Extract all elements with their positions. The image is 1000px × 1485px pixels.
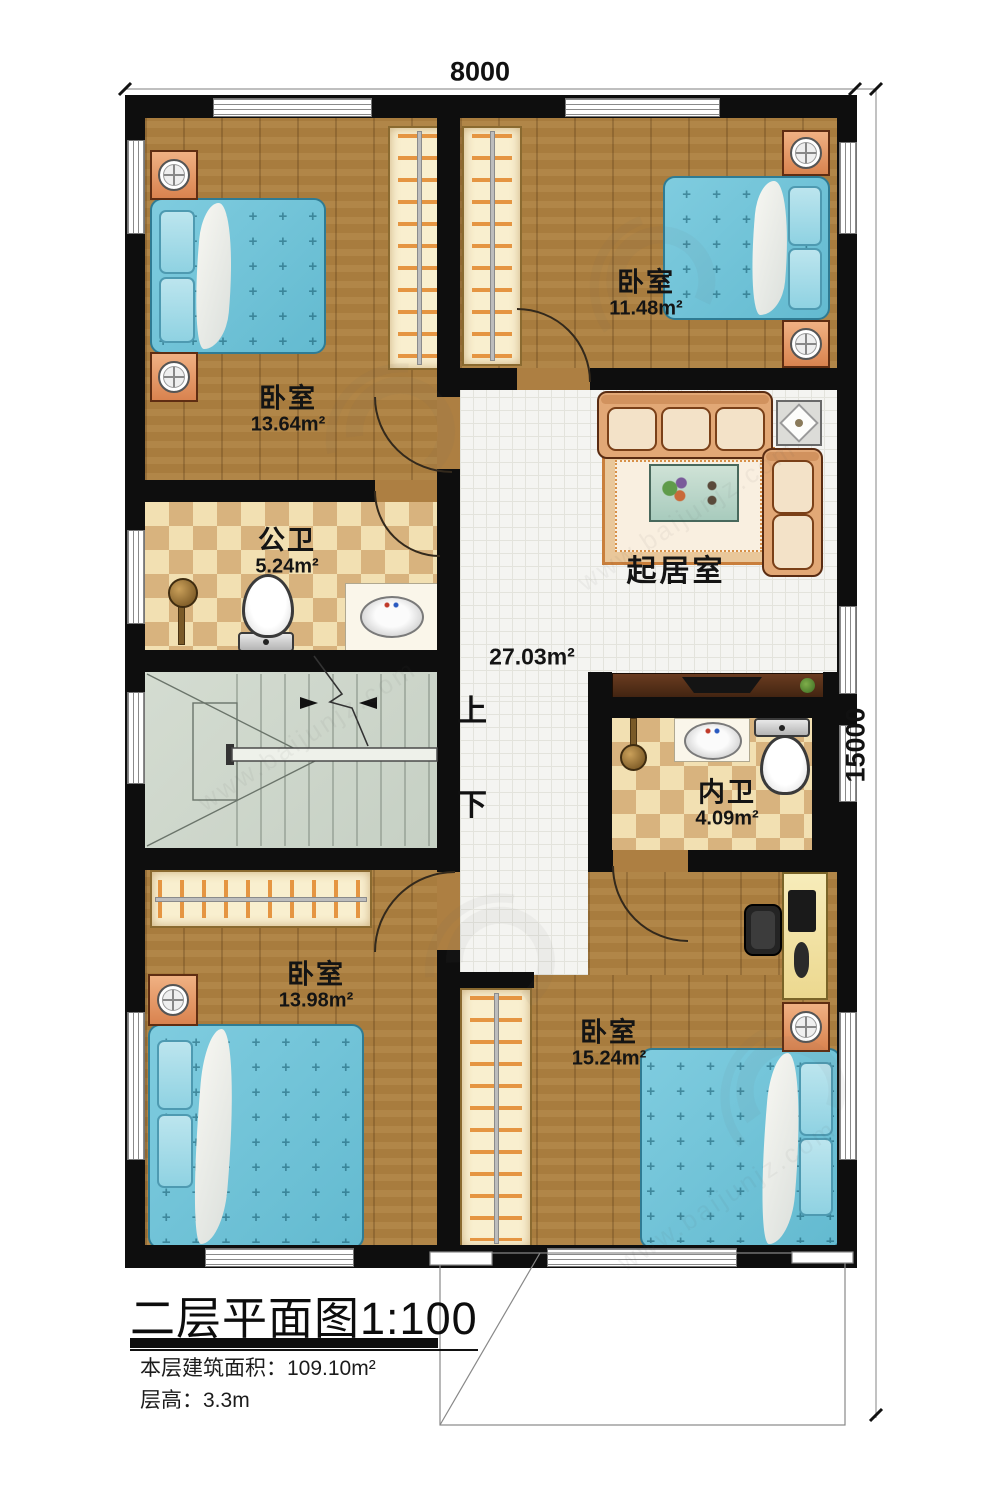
title-underline-bar: [130, 1338, 438, 1348]
window: [839, 1012, 857, 1160]
room-name: 公卫: [255, 526, 318, 556]
wardrobe: [460, 988, 532, 1249]
sofa-cushion: [772, 460, 814, 514]
sink: [360, 596, 424, 638]
floor-plan-canvas: 卧室 13.64m² 卧室 11.48m² 公卫 5.24m² 起居室 27.0…: [0, 0, 1000, 1485]
room-label-public-bath: 公卫 5.24m²: [255, 526, 318, 579]
window: [547, 1248, 737, 1267]
nightstand: [150, 150, 198, 200]
sofa-cushion: [715, 407, 765, 451]
bed-sheet: [190, 203, 239, 349]
floor-height-line: 层高：3.3m: [140, 1384, 250, 1414]
wall-segment: [590, 368, 837, 390]
floor-area-line: 本层建筑面积：109.10m²: [140, 1352, 376, 1382]
wall-segment: [437, 950, 460, 1245]
sink: [684, 722, 742, 760]
wall-segment: [450, 972, 534, 988]
wall-segment: [125, 650, 460, 672]
pillow: [799, 1138, 833, 1216]
window: [127, 692, 145, 784]
door-opening: [375, 480, 437, 502]
wall-segment: [688, 850, 837, 872]
room-area: 13.64m²: [251, 414, 326, 436]
window: [213, 98, 372, 117]
window: [565, 98, 720, 117]
window: [839, 142, 857, 234]
plant: [800, 678, 815, 693]
room-name: 卧室: [279, 960, 354, 990]
room-area: 5.24m²: [255, 556, 318, 578]
pillow: [157, 1114, 193, 1188]
bed-sheet: [187, 1029, 242, 1244]
wall-segment: [588, 697, 839, 718]
wardrobe: [150, 870, 372, 928]
corner-table: [776, 400, 822, 446]
wardrobe: [462, 126, 522, 366]
nightstand: [148, 974, 198, 1026]
room-name: 卧室: [251, 384, 326, 414]
room-label-living-area: 27.03m²: [489, 644, 575, 671]
tv-screen: [682, 677, 762, 693]
room-area: 13.98m²: [279, 990, 354, 1012]
bed: [663, 176, 830, 320]
nightstand: [150, 352, 198, 402]
room-label-bedroom-bottom-left: 卧室 13.98m²: [279, 960, 354, 1013]
dimension-width-label: 8000: [450, 57, 510, 88]
pillow: [788, 186, 822, 246]
door-opening: [517, 368, 590, 390]
wall-segment: [125, 848, 460, 870]
room-area: 15.24m²: [572, 1048, 647, 1070]
window: [127, 140, 145, 234]
pillow: [159, 210, 195, 274]
window: [839, 606, 857, 694]
room-name: 卧室: [572, 1018, 647, 1048]
sofa-two-seat: [762, 448, 823, 577]
roof-outline: [430, 1252, 853, 1425]
desk-mirror: [794, 942, 809, 978]
floor-corridor: [460, 697, 588, 975]
wardrobe-rail: [417, 131, 422, 365]
shower-arm: [178, 603, 185, 645]
pillow: [157, 1040, 193, 1110]
room-label-bedroom-top-right: 卧室 11.48m²: [609, 268, 682, 321]
door-opening: [613, 850, 688, 872]
coffee-table: [649, 464, 739, 522]
wall-segment: [588, 850, 613, 872]
drawing-title-text: 二层平面图: [130, 1293, 360, 1344]
pillow: [159, 277, 195, 343]
stairs-up-label: 上: [457, 686, 487, 730]
bed: [150, 198, 326, 354]
dimension-height-label: 15000: [841, 707, 872, 782]
room-name: 卧室: [609, 268, 682, 298]
sofa-three-seat: [597, 391, 773, 459]
sofa-cushion: [772, 514, 814, 570]
room-area: 4.09m²: [695, 808, 758, 830]
window: [127, 530, 145, 624]
wall-segment: [460, 368, 517, 390]
room-label-bedroom-bottom-right: 卧室 15.24m²: [572, 1018, 647, 1071]
floor-stairs: [145, 672, 437, 848]
room-label-bedroom-top-left: 卧室 13.64m²: [251, 384, 326, 437]
wall-segment: [812, 718, 837, 850]
window: [127, 1012, 145, 1160]
window: [205, 1248, 354, 1267]
door-opening: [437, 872, 460, 950]
room-area: 11.48m²: [609, 298, 682, 320]
toilet: [242, 574, 294, 638]
bed: [640, 1048, 841, 1249]
room-name: 内卫: [695, 778, 758, 808]
stairs-down-label: 下: [457, 780, 487, 824]
wall-segment: [437, 469, 460, 502]
nightstand: [782, 130, 830, 176]
shower-head: [620, 744, 647, 771]
pillow: [799, 1062, 833, 1136]
bed: [148, 1024, 364, 1249]
toilet: [760, 735, 810, 795]
nightstand: [782, 320, 830, 368]
wall-segment: [437, 95, 460, 397]
pillow: [788, 248, 822, 310]
desk-item: [788, 890, 816, 932]
nightstand: [782, 1002, 830, 1052]
sofa-cushion: [607, 407, 657, 451]
wall-segment: [125, 480, 375, 502]
wardrobe-rail: [494, 993, 499, 1244]
wall-segment: [823, 672, 837, 718]
sofa-cushion: [661, 407, 711, 451]
chair: [744, 904, 782, 956]
bed-sheet: [746, 181, 794, 315]
wardrobe-rail: [155, 897, 367, 902]
drawing-scale: 1:100: [360, 1293, 478, 1344]
wardrobe-rail: [490, 131, 495, 361]
shower-head: [168, 578, 198, 608]
door-opening: [437, 397, 460, 469]
room-label-inner-bath: 内卫 4.09m²: [695, 778, 758, 831]
room-label-living-name: 起居室: [627, 546, 726, 590]
